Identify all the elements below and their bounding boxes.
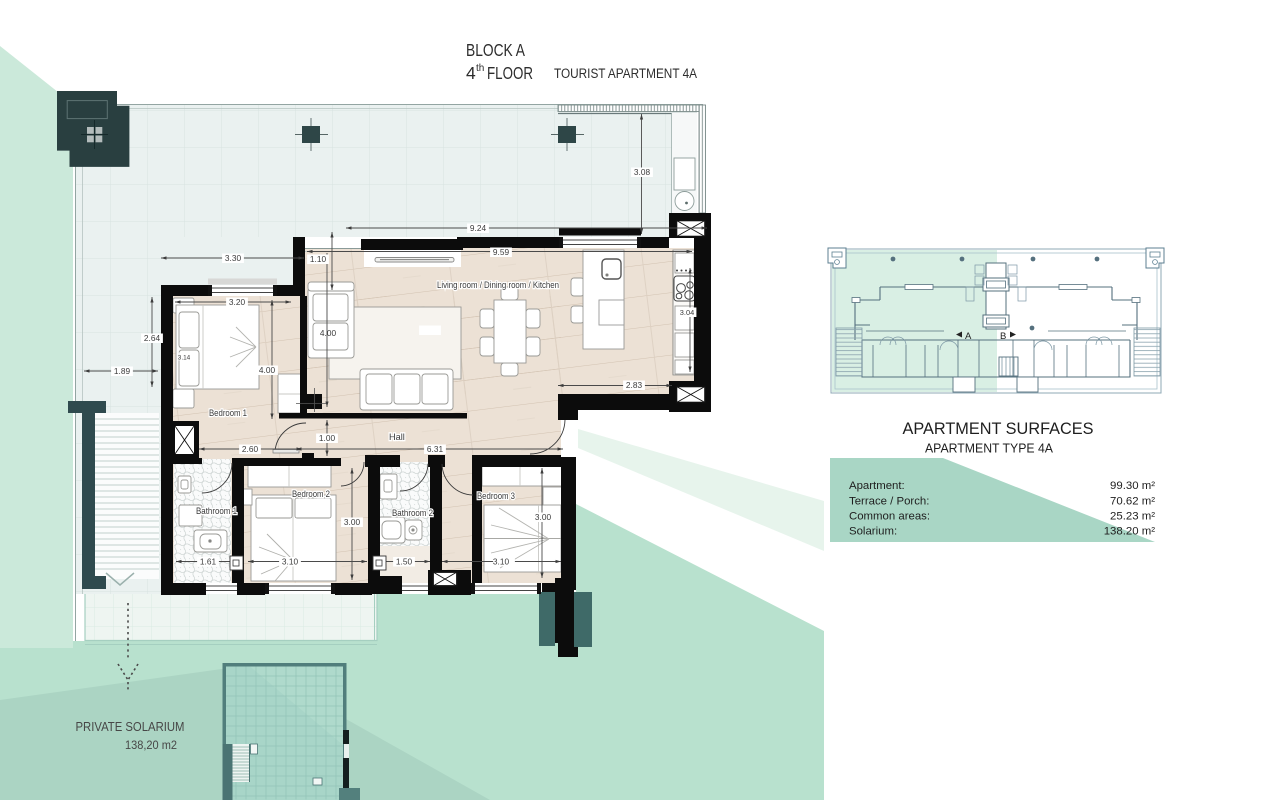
svg-text:3.04: 3.04 <box>680 308 694 317</box>
svg-text:1.61: 1.61 <box>200 557 217 567</box>
svg-text:2.83: 2.83 <box>626 380 643 390</box>
svg-text:Hall: Hall <box>389 432 405 442</box>
svg-text:9.59: 9.59 <box>493 247 510 257</box>
svg-text:Bedroom 1: Bedroom 1 <box>209 408 247 418</box>
svg-text:3.14: 3.14 <box>178 355 191 362</box>
svg-text:1.10: 1.10 <box>310 254 327 264</box>
svg-text:4.00: 4.00 <box>259 365 276 375</box>
svg-text:3.10: 3.10 <box>282 557 299 567</box>
svg-text:B: B <box>1000 331 1006 342</box>
svg-text:Living room / Dining room / Ki: Living room / Dining room / Kitchen <box>437 280 559 290</box>
svg-text:3.10: 3.10 <box>493 557 510 567</box>
svg-text:3.00: 3.00 <box>344 517 361 527</box>
svg-text:138.20 m²: 138.20 m² <box>1104 526 1155 538</box>
svg-text:th: th <box>476 63 484 74</box>
svg-text:99.30 m²: 99.30 m² <box>1110 480 1155 492</box>
svg-text:4: 4 <box>466 63 476 83</box>
svg-text:4.00: 4.00 <box>320 328 337 338</box>
svg-text:APARTMENT TYPE 4A: APARTMENT TYPE 4A <box>925 441 1053 456</box>
svg-text:6.31: 6.31 <box>427 444 444 454</box>
svg-text:70.62 m²: 70.62 m² <box>1110 496 1155 508</box>
svg-text:2.60: 2.60 <box>242 444 259 454</box>
svg-text:Bedroom 2: Bedroom 2 <box>292 489 330 499</box>
svg-text:PRIVATE SOLARIUM: PRIVATE SOLARIUM <box>76 719 185 734</box>
svg-text:9.24: 9.24 <box>470 223 487 233</box>
svg-text:BLOCK A: BLOCK A <box>466 40 525 60</box>
svg-text:1.89: 1.89 <box>114 366 131 376</box>
svg-text:2.64: 2.64 <box>144 333 161 343</box>
svg-text:Solarium:: Solarium: <box>849 526 897 538</box>
svg-text:3.30: 3.30 <box>225 253 242 263</box>
svg-text:Bathroom 2: Bathroom 2 <box>392 508 433 518</box>
svg-text:3.00: 3.00 <box>535 512 552 522</box>
svg-text:FLOOR: FLOOR <box>487 63 533 83</box>
svg-text:3.20: 3.20 <box>229 297 246 307</box>
svg-text:Bedroom 3: Bedroom 3 <box>477 491 515 501</box>
svg-text:25.23 m²: 25.23 m² <box>1110 511 1155 523</box>
svg-text:138,20 m2: 138,20 m2 <box>125 740 177 752</box>
svg-text:1.00: 1.00 <box>319 433 336 443</box>
svg-text:1.50: 1.50 <box>396 557 413 567</box>
svg-text:Bathroom 1: Bathroom 1 <box>196 506 237 516</box>
svg-text:3.08: 3.08 <box>634 167 651 177</box>
svg-text:Apartment:: Apartment: <box>849 480 905 492</box>
svg-text:Common areas:: Common areas: <box>849 511 930 523</box>
svg-text:TOURIST APARTMENT 4A: TOURIST APARTMENT 4A <box>554 66 697 82</box>
svg-text:A: A <box>965 331 972 342</box>
svg-text:APARTMENT SURFACES: APARTMENT SURFACES <box>903 420 1094 438</box>
svg-text:Terrace / Porch:: Terrace / Porch: <box>849 496 929 508</box>
